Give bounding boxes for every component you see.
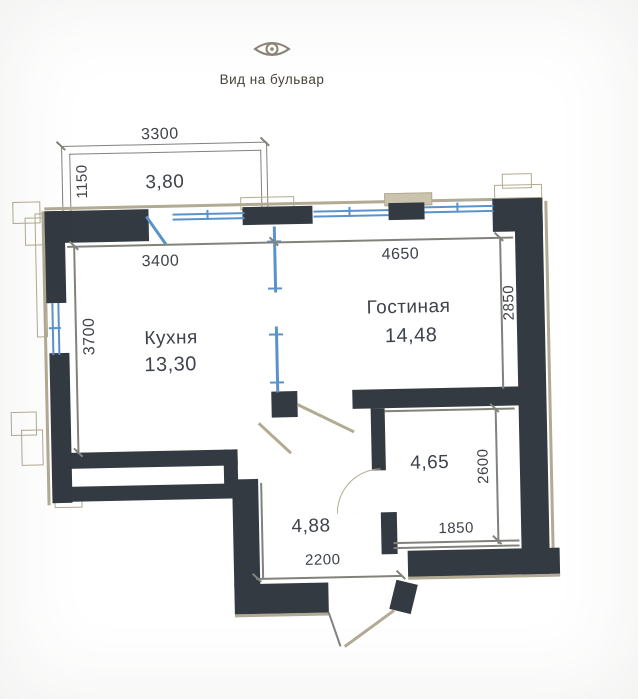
living-area: 14,48 xyxy=(341,322,481,349)
wall-kitchen-south xyxy=(57,449,237,469)
dim-living-width: 4650 xyxy=(350,244,450,266)
wall-lower-band xyxy=(60,483,236,502)
bath-door-swing xyxy=(336,468,382,514)
wall-hall-south xyxy=(234,582,329,614)
entry-door-leaf xyxy=(344,609,395,647)
kitchen-door-leaf xyxy=(258,422,292,454)
window-north-2-line xyxy=(424,205,493,208)
wall-left-upper xyxy=(44,211,66,303)
wall-pier-north-2 xyxy=(388,202,424,220)
dim-living-depth: 2850 xyxy=(498,272,519,332)
dim-bathroom-width: 1850 xyxy=(406,517,506,539)
living-name: Гостиная xyxy=(338,295,478,320)
dim-hallway-width: 2200 xyxy=(273,549,373,571)
wall-left-lower xyxy=(49,353,72,503)
partition-line-upper xyxy=(273,226,277,292)
wall-pier-north-1 xyxy=(242,206,312,225)
facade-pilaster xyxy=(21,429,44,465)
balcony-window-tick xyxy=(206,210,208,220)
partition-tick xyxy=(268,287,282,289)
dim-kitchen-width: 3400 xyxy=(110,251,210,273)
dim-kitchen-depth: 3700 xyxy=(79,306,100,366)
floor-plan: 3300 1150 3,80 xyxy=(0,0,638,699)
bathroom-area: 4,65 xyxy=(380,450,480,476)
partition-tick xyxy=(269,333,283,335)
living-door-leaf xyxy=(297,403,355,433)
window-north-2-line xyxy=(424,210,493,213)
kitchen-area: 13,30 xyxy=(110,351,230,378)
window-north-1-tick xyxy=(348,207,350,217)
wall-entry-jamb xyxy=(389,580,418,614)
window-left-tick xyxy=(49,327,61,329)
wall-bath-south xyxy=(408,548,561,577)
wall-hall-left xyxy=(232,479,260,587)
balcony-area-label: 3,80 xyxy=(115,170,215,196)
floor-plan-photo: Вид на бульвар 3300 1150 3,80 xyxy=(0,0,638,699)
window-north-1-line xyxy=(313,209,388,213)
dim-balcony-width: 3300 xyxy=(110,124,210,146)
window-north-1-line xyxy=(314,214,389,218)
hall-south-inner-line xyxy=(256,575,402,580)
kitchen-name: Кухня xyxy=(111,326,231,351)
window-north-2-tick xyxy=(456,203,458,213)
wall-partition-stub xyxy=(271,391,298,418)
vestibule-side-line xyxy=(328,612,341,646)
wall-living-south xyxy=(352,386,544,409)
dim-line-kitchen-west xyxy=(73,246,79,454)
hallway-area: 4,88 xyxy=(261,514,361,540)
dim-balcony-depth: 1150 xyxy=(71,151,92,211)
partition-tick xyxy=(270,381,284,383)
